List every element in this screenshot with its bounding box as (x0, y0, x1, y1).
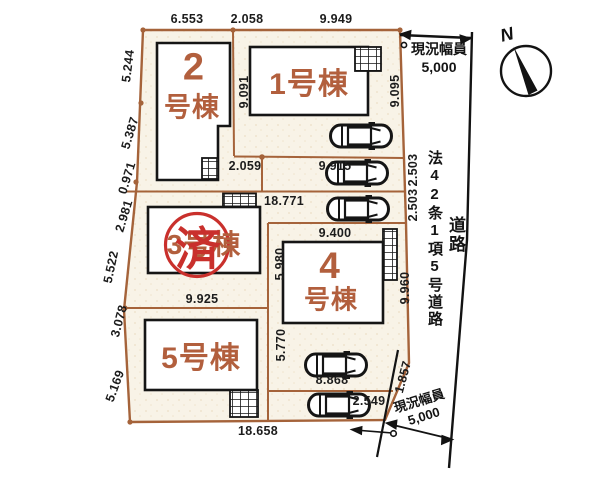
sold-stamp-text: 済 (175, 213, 221, 279)
dim-9915: 9.915 (319, 159, 352, 173)
dim-top-3: 9.949 (320, 12, 353, 26)
compass-icon (501, 46, 551, 96)
building-5-entrance-steps-icon (230, 390, 258, 417)
car-icon-1 (331, 122, 392, 150)
dim-top-2: 2.058 (231, 12, 264, 26)
building-5-label: 5号棟 (161, 333, 241, 377)
dim-5770: 5.770 (274, 329, 288, 362)
building-1-entrance-steps-icon (355, 47, 381, 71)
dim-5980: 5.980 (273, 248, 287, 281)
road-width-top-text: 現況幅員 (411, 39, 467, 59)
dim-9960: 9.960 (398, 272, 412, 305)
building-4-suffix: 号棟 (304, 280, 358, 317)
dim-2503-b: 2.503 (406, 189, 420, 222)
dim-2059: 2.059 (229, 159, 262, 173)
dim-9091: 9.091 (237, 76, 251, 109)
dim-9400: 9.400 (319, 226, 352, 240)
road-legal-label: 法42条1項5号道路 (424, 150, 445, 328)
building-2-number: 2 (183, 47, 205, 90)
building-1-label: 1号棟 (269, 59, 349, 103)
building-2-suffix: 号棟 (164, 86, 220, 125)
building-2-entrance-steps-icon (202, 158, 218, 179)
building-4-entrance-steps-icon (383, 229, 397, 280)
leader-arrow (351, 427, 396, 437)
road-width-top-value: 5,000 (411, 59, 467, 75)
dim-9095: 9.095 (388, 75, 402, 108)
road-width-label-top: 現況幅員 5,000 (411, 39, 467, 75)
dim-18658: 18.658 (238, 424, 278, 438)
dim-8868: 8.868 (316, 373, 349, 387)
car-icon-3 (328, 195, 389, 223)
dim-9925: 9.925 (186, 292, 219, 306)
dim-top-1: 6.553 (171, 12, 204, 26)
building-3-entrance-steps-icon (223, 194, 256, 207)
dim-2549: 2.549 (353, 394, 386, 408)
site-plan: 2 号棟 1号棟 3号棟 4 号棟 5号棟 済 6.553 2.058 9.94… (0, 0, 600, 479)
dim-18771: 18.771 (264, 194, 304, 208)
road-label: 道路 (443, 216, 468, 254)
dim-2503-a: 2.503 (406, 154, 420, 187)
